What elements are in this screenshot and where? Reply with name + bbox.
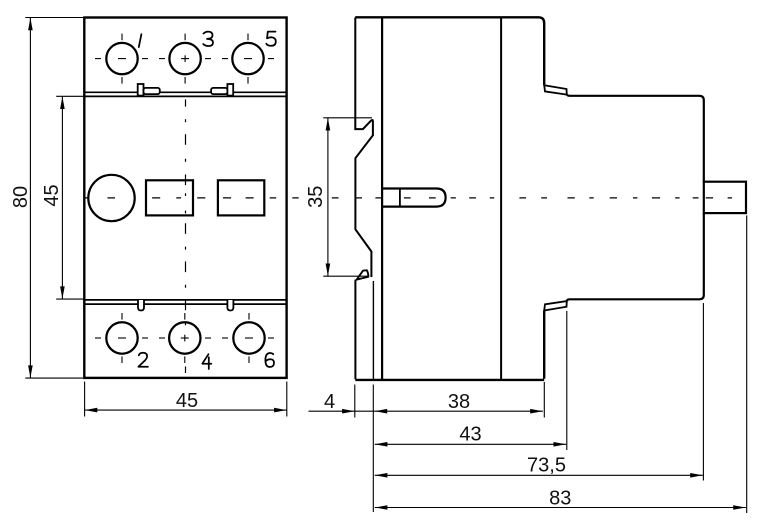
- svg-text:35: 35: [305, 186, 327, 208]
- svg-text:43: 43: [459, 424, 481, 446]
- svg-text:73,5: 73,5: [527, 455, 566, 477]
- svg-text:80: 80: [10, 186, 32, 208]
- svg-text:38: 38: [448, 391, 470, 413]
- svg-text:45: 45: [176, 390, 198, 412]
- svg-text:83: 83: [549, 488, 571, 510]
- svg-text:4: 4: [324, 391, 335, 413]
- svg-text:45: 45: [41, 184, 63, 206]
